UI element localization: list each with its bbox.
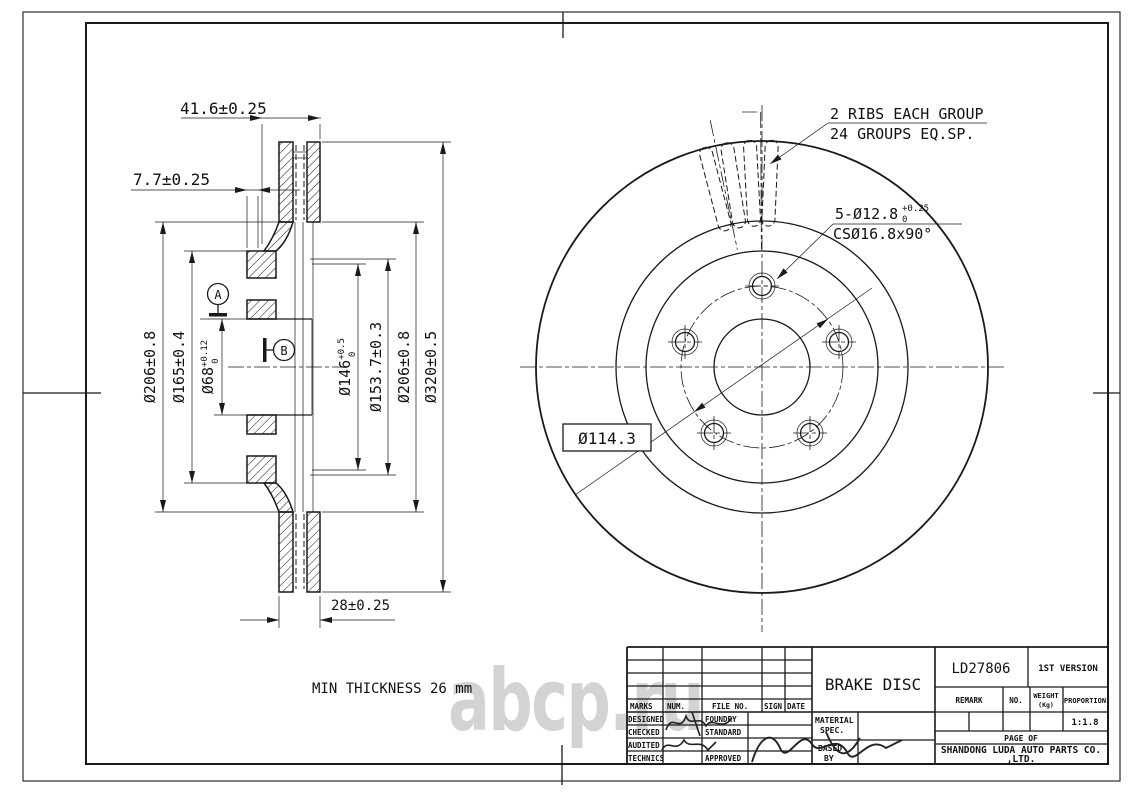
holes-tol-lower: 0 — [902, 215, 907, 225]
section-dimensions: 41.6±0.25 7.7±0.25 Ø206±0.8 — [131, 99, 472, 697]
bolt-hole — [745, 273, 779, 299]
hat-transition-top — [264, 222, 293, 251]
svg-text:B: B — [280, 344, 287, 358]
hat-transition-bottom — [264, 483, 293, 512]
dim-d206-left: Ø206±0.8 — [141, 331, 159, 403]
flange-top-b — [247, 300, 276, 319]
version-label: 1ST VERSION — [1038, 664, 1098, 674]
dim-d68: Ø68+0.120 — [199, 340, 221, 394]
role-approved: APPROVED — [705, 754, 742, 763]
drawing-canvas: 41.6±0.25 7.7±0.25 Ø206±0.8 — [0, 0, 1131, 800]
vent-ribs — [698, 112, 778, 250]
dim-d165: Ø165±0.4 — [170, 331, 188, 403]
role-checked: CHECKED — [628, 728, 660, 737]
holes-count-size: 5-Ø12.8 — [835, 205, 898, 223]
rev-col-num: NUM. — [667, 702, 685, 711]
rev-col-date: DATE — [787, 702, 806, 711]
outboard-plate-bottom — [279, 512, 293, 592]
min-thickness-note: MIN THICKNESS 26 mm — [312, 681, 472, 697]
countersink-note: CSØ16.8x90° — [833, 225, 932, 243]
bolt-circle-label: Ø114.3 — [578, 429, 636, 448]
front-view: 2 RIBS EACH GROUP 24 GROUPS EQ.SP. 5-Ø12… — [520, 105, 1005, 632]
ribs-callout: 2 RIBS EACH GROUP 24 GROUPS EQ.SP. — [770, 105, 987, 164]
role-audited: AUDITED — [628, 741, 660, 750]
ribs-note-line2: 24 GROUPS EQ.SP. — [830, 125, 975, 143]
signature-audited — [662, 740, 716, 750]
rev-col-file: FILE NO. — [712, 702, 748, 711]
material-label-1: MATERIAL — [815, 716, 854, 725]
flange-bottom-a — [247, 456, 276, 483]
datum-b: B — [263, 338, 295, 362]
drawing-number: LD27806 — [951, 661, 1010, 677]
col-no: NO. — [1009, 696, 1023, 705]
dim-disc-thickness: 28±0.25 — [331, 598, 390, 614]
flange-bottom-b — [247, 415, 276, 434]
material-label-2: SPEC. — [820, 726, 844, 735]
dim-flange-thickness: 7.7±0.25 — [133, 170, 210, 189]
flange-top-a — [247, 251, 276, 278]
col-weight-2: (Kg) — [1038, 701, 1054, 709]
rev-col-sign: SIGN — [764, 702, 783, 711]
role-designed: DESIGNED — [628, 715, 665, 724]
col-remark: REMARK — [955, 696, 983, 705]
ribs-note-line1: 2 RIBS EACH GROUP — [830, 105, 984, 123]
col-proportion: PROPORTION — [1064, 697, 1106, 705]
dim-d153-7: Ø153.7±0.3 — [367, 322, 385, 412]
dim-d206-right: Ø206±0.8 — [395, 331, 413, 403]
page-label: PAGE OF — [1004, 734, 1038, 743]
col-weight-1: WEIGHT — [1033, 692, 1058, 700]
outboard-plate-top — [279, 142, 293, 222]
dim-d320: Ø320±0.5 — [422, 331, 440, 403]
inboard-plate-bottom — [307, 512, 320, 592]
datum-a: A — [208, 284, 229, 317]
inboard-plate-top — [307, 142, 320, 222]
rev-col-marks: MARKS — [630, 702, 653, 711]
title-block: MARKS NUM. FILE NO. SIGN DATE DESIGNED C… — [627, 647, 1108, 765]
svg-text:A: A — [214, 288, 222, 302]
role-standard: STANDARD — [705, 728, 742, 737]
dim-hat-depth: 41.6±0.25 — [180, 99, 267, 118]
part-name: BRAKE DISC — [825, 675, 921, 694]
holes-tol-upper: +0.25 — [902, 204, 929, 214]
role-technics: TECHNICS — [628, 754, 665, 763]
drawing-sheet: abcp.ru — [0, 0, 1131, 800]
based-label-2: BY — [824, 754, 834, 763]
dim-d146: Ø146+0.50 — [336, 338, 358, 396]
company-line2: ,LTD. — [1007, 754, 1036, 765]
proportion-value: 1:1.8 — [1071, 718, 1098, 728]
section-view — [228, 142, 345, 592]
